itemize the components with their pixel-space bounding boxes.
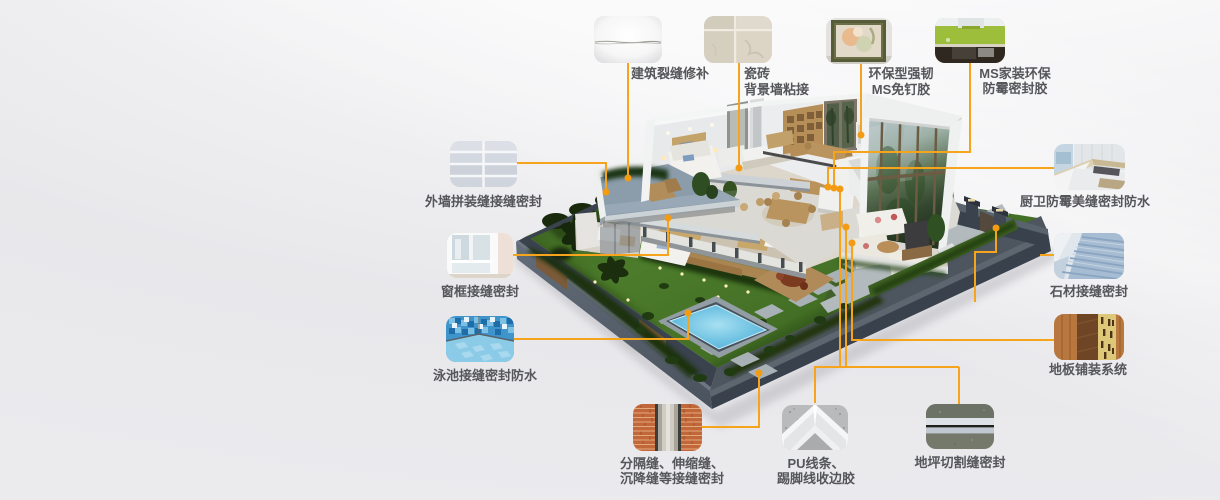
svg-text:地坪切割缝密封: 地坪切割缝密封 — [914, 455, 1005, 470]
svg-text:背景墙粘接: 背景墙粘接 — [744, 82, 809, 97]
svg-text:MS免钉胶: MS免钉胶 — [872, 82, 931, 97]
svg-text:PU线条、: PU线条、 — [787, 456, 844, 471]
svg-text:MS家装环保: MS家装环保 — [979, 66, 1052, 81]
svg-text:瓷砖: 瓷砖 — [744, 66, 770, 81]
svg-text:沉降缝等接缝密封: 沉降缝等接缝密封 — [620, 471, 724, 486]
svg-text:泳池接缝密封防水: 泳池接缝密封防水 — [433, 368, 538, 383]
svg-text:防霉密封胶: 防霉密封胶 — [982, 81, 1047, 96]
svg-text:厨卫防霉美缝密封防水: 厨卫防霉美缝密封防水 — [1020, 194, 1151, 209]
svg-text:分隔缝、伸缩缝、: 分隔缝、伸缩缝、 — [620, 456, 724, 471]
svg-text:建筑裂缝修补: 建筑裂缝修补 — [631, 66, 709, 81]
svg-text:环保型强韧: 环保型强韧 — [868, 66, 933, 81]
svg-text:外墙拼装缝接缝密封: 外墙拼装缝接缝密封 — [424, 194, 542, 209]
svg-text:地板铺装系统: 地板铺装系统 — [1049, 362, 1127, 377]
svg-text:窗框接缝密封: 窗框接缝密封 — [441, 284, 519, 299]
svg-text:踢脚线收边胶: 踢脚线收边胶 — [777, 471, 855, 486]
svg-text:石材接缝密封: 石材接缝密封 — [1049, 284, 1128, 299]
